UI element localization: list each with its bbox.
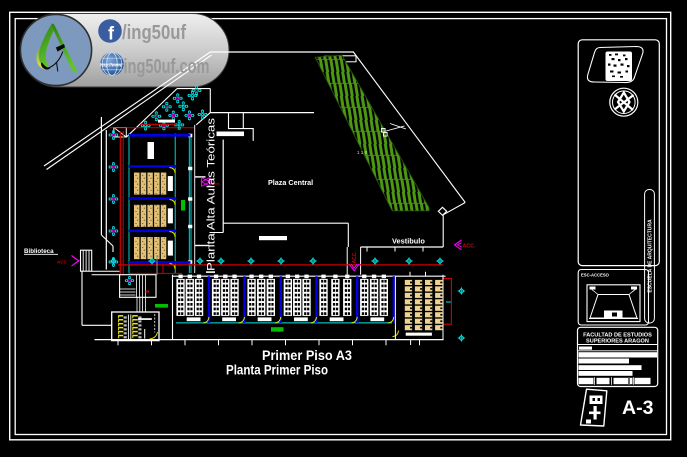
svg-text:/ing50uf: /ing50uf [122,22,186,44]
svg-text:f: f [108,24,115,44]
svg-text:http://www.: http://www. [100,63,122,68]
svg-text:A-3: A-3 [622,397,654,419]
svg-text:1 1 8: 1 1 8 [357,150,368,155]
svg-text:Plaza Central: Plaza Central [268,178,313,187]
svg-text:Vestibulo: Vestibulo [392,237,425,246]
svg-text:ACC.: ACC. [463,244,477,250]
svg-text:Planta Alta Aulas Teóricas: Planta Alta Aulas Teóricas [206,117,218,271]
svg-text:SUPERIORES ARAGON: SUPERIORES ARAGON [586,339,649,345]
svg-text:ing50uf.com: ing50uf.com [124,56,210,78]
svg-text:ACC.: ACC. [352,251,358,264]
svg-text:ESC-ACCESO: ESC-ACCESO [581,273,610,278]
svg-text:Planta Primer Piso: Planta Primer Piso [226,363,328,378]
svg-text:ACC: ACC [57,260,68,265]
svg-text:Primer Piso A3: Primer Piso A3 [262,348,352,363]
